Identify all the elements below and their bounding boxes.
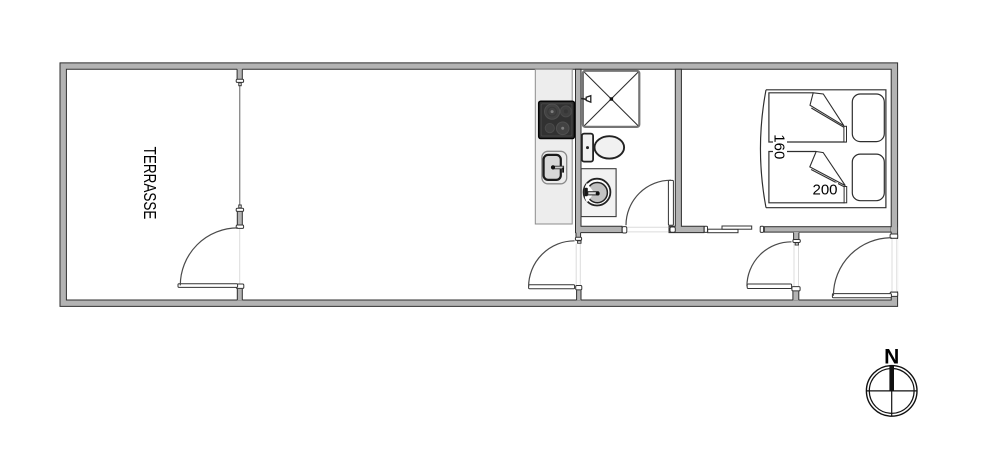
svg-text:TERRASSE: TERRASSE (140, 147, 159, 220)
svg-text:160: 160 (770, 134, 787, 159)
svg-text:200: 200 (812, 181, 837, 198)
svg-text:N: N (884, 345, 899, 368)
